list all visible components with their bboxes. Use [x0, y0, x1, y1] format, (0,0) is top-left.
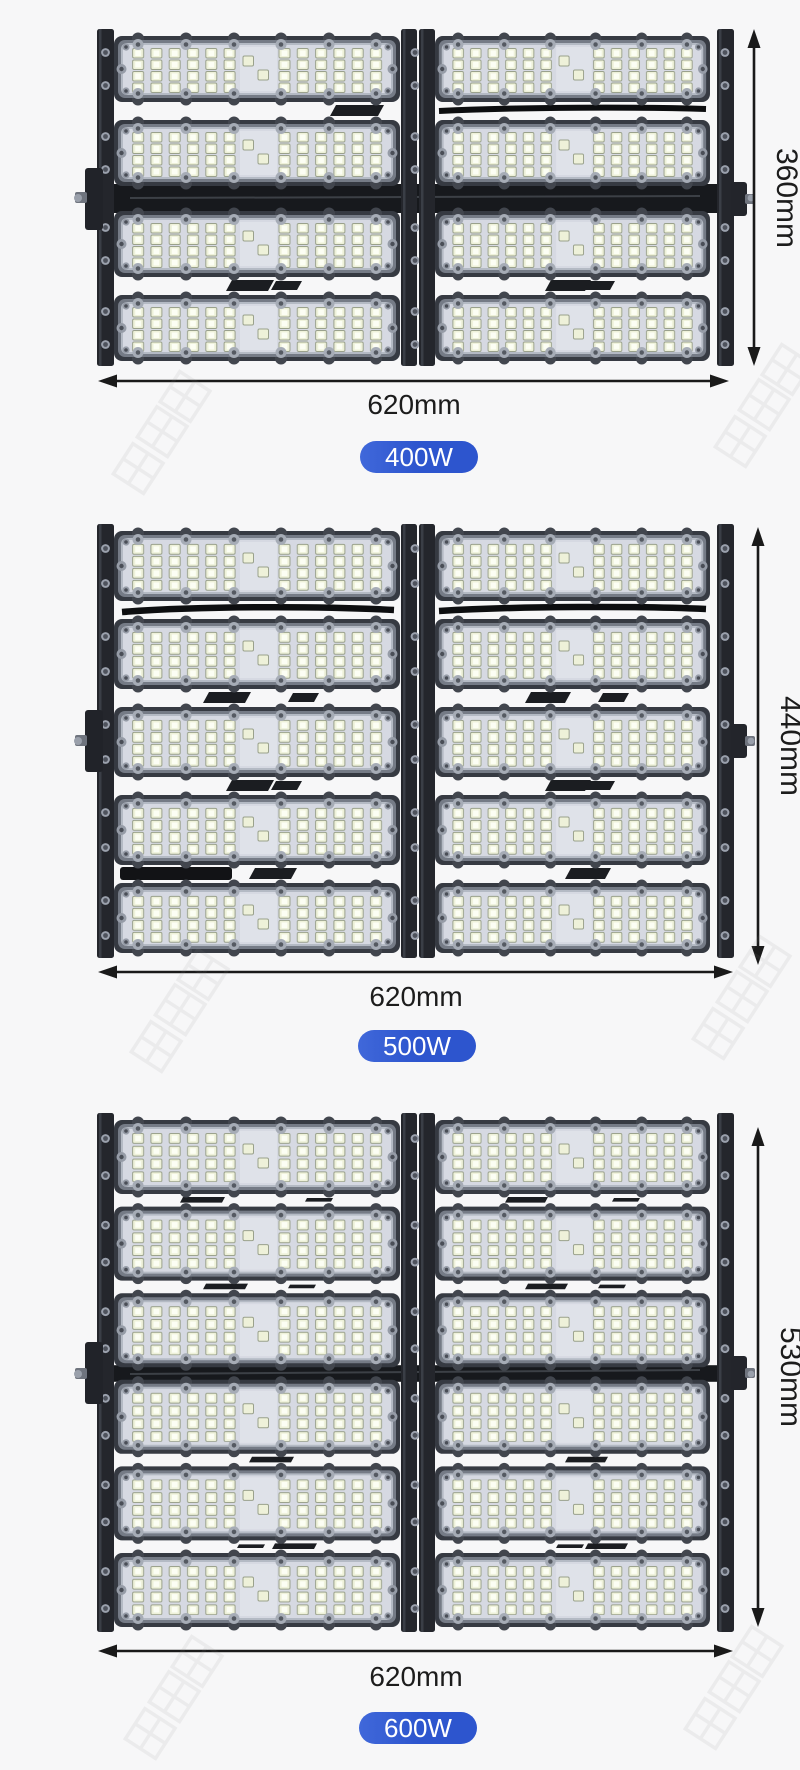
svg-text:500W: 500W — [383, 1031, 451, 1061]
svg-text:600W: 600W — [384, 1713, 452, 1743]
svg-text:530mm: 530mm — [774, 1327, 800, 1427]
svg-text:360mm: 360mm — [770, 148, 800, 248]
svg-text:620mm: 620mm — [369, 981, 462, 1012]
svg-text:620mm: 620mm — [369, 1661, 462, 1692]
svg-text:440mm: 440mm — [774, 696, 800, 796]
svg-text:400W: 400W — [385, 442, 453, 472]
svg-text:620mm: 620mm — [367, 389, 460, 420]
